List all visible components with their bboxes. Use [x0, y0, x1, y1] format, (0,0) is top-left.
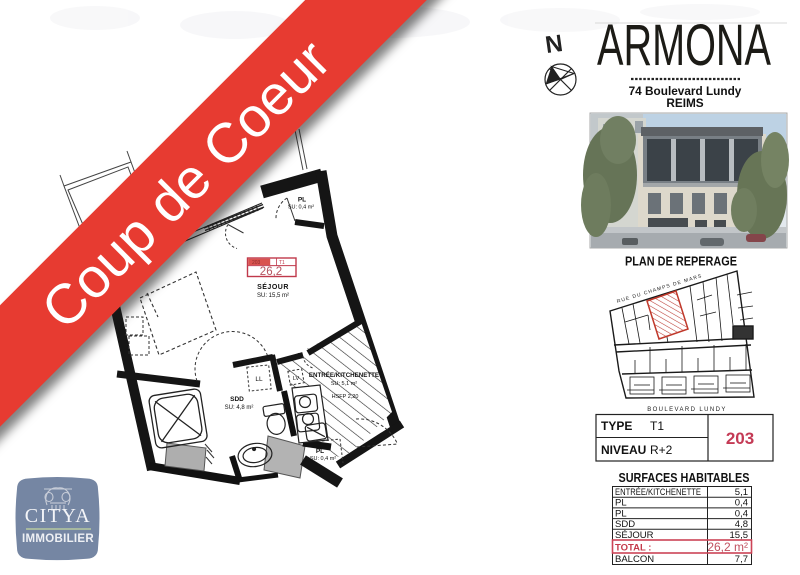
svg-text:BOULEVARD LUNDY: BOULEVARD LUNDY — [647, 407, 727, 413]
svg-text:ENTRÉE/KITCHENETTE: ENTRÉE/KITCHENETTE — [615, 487, 701, 498]
svg-text:26,2: 26,2 — [260, 266, 282, 278]
svg-text:4,8: 4,8 — [735, 519, 748, 530]
svg-text:SU: 15,5 m²: SU: 15,5 m² — [257, 293, 289, 299]
svg-text:5,1: 5,1 — [735, 487, 748, 498]
svg-text:SU: 0,4 m²: SU: 0,4 m² — [310, 456, 336, 462]
svg-text:SURFACES HABITABLES: SURFACES HABITABLES — [619, 470, 750, 485]
svg-text:PL: PL — [316, 448, 324, 455]
svg-text:PL: PL — [298, 197, 306, 204]
svg-text:SÉJOUR: SÉJOUR — [257, 282, 289, 291]
svg-text:SDD: SDD — [615, 519, 635, 530]
svg-text:IMMOBILIER: IMMOBILIER — [22, 533, 94, 545]
svg-text:PL: PL — [615, 508, 627, 519]
svg-text:BALCON: BALCON — [615, 554, 654, 565]
svg-text:SÉJOUR: SÉJOUR — [615, 530, 654, 541]
svg-text:SU: 4,8 m²: SU: 4,8 m² — [225, 405, 254, 411]
svg-text:26,2 m²: 26,2 m² — [707, 540, 748, 554]
svg-text:LL: LL — [255, 376, 263, 383]
svg-text:PLAN DE REPERAGE: PLAN DE REPERAGE — [625, 254, 737, 269]
svg-text:LV: LV — [293, 376, 300, 382]
svg-text:ENTRÉE/KITCHENETTE: ENTRÉE/KITCHENETTE — [309, 371, 379, 379]
svg-text:PL: PL — [615, 498, 627, 509]
svg-text:CITYA: CITYA — [25, 505, 91, 527]
svg-text:R+2: R+2 — [650, 443, 673, 457]
svg-text:0,4: 0,4 — [735, 498, 748, 509]
svg-text:T1: T1 — [650, 419, 664, 433]
svg-text:HSFP 2,20: HSFP 2,20 — [332, 394, 359, 400]
svg-text:NIVEAU: NIVEAU — [601, 443, 646, 457]
svg-text:TOTAL :: TOTAL : — [615, 543, 651, 554]
svg-text:ARMONA: ARMONA — [597, 13, 771, 78]
svg-text:SDD: SDD — [230, 396, 244, 403]
svg-text:N: N — [544, 30, 565, 59]
svg-text:TYPE: TYPE — [601, 419, 632, 433]
svg-text:SU: 0,4 m²: SU: 0,4 m² — [288, 205, 314, 211]
svg-text:REIMS: REIMS — [666, 96, 703, 110]
svg-text:7,7: 7,7 — [735, 554, 748, 565]
svg-text:203: 203 — [726, 429, 754, 448]
svg-text:0,4: 0,4 — [735, 508, 748, 519]
svg-text:SU: 5,1 m²: SU: 5,1 m² — [331, 381, 357, 387]
